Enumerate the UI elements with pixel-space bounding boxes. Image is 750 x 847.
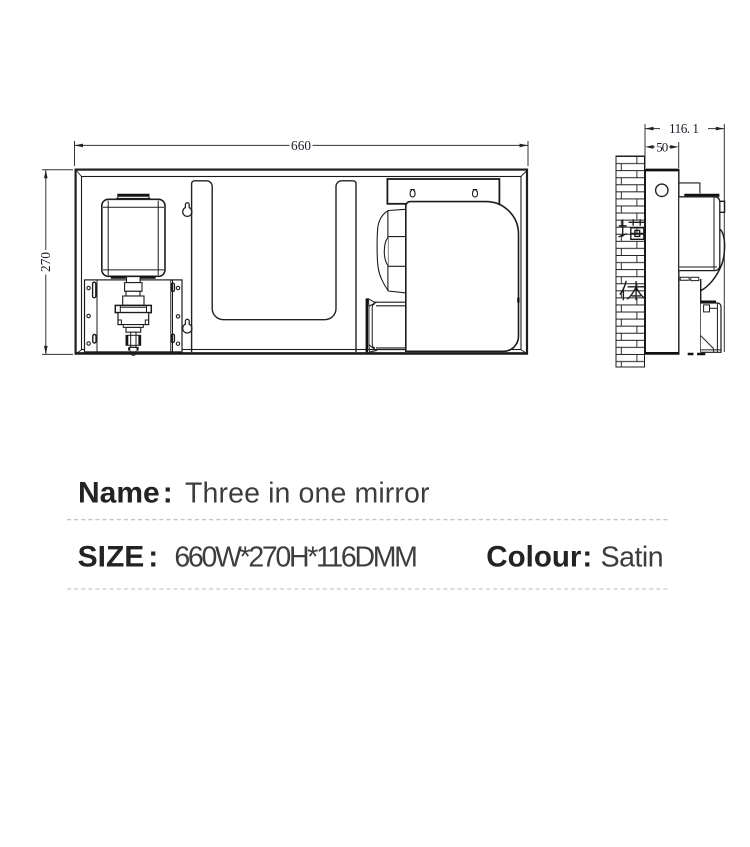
svg-text:50: 50: [656, 140, 668, 155]
svg-text:270: 270: [38, 252, 53, 272]
svg-text:Three in one mirror: Three in one mirror: [185, 478, 430, 510]
svg-text:660: 660: [291, 138, 311, 153]
svg-text:Name:: Name:: [78, 477, 173, 510]
svg-text:Colour:: Colour:: [486, 541, 592, 574]
svg-text:Satin: Satin: [601, 542, 664, 574]
svg-text:660W*270H*116DMM: 660W*270H*116DMM: [174, 542, 418, 574]
svg-text:116. 1: 116. 1: [669, 121, 699, 136]
